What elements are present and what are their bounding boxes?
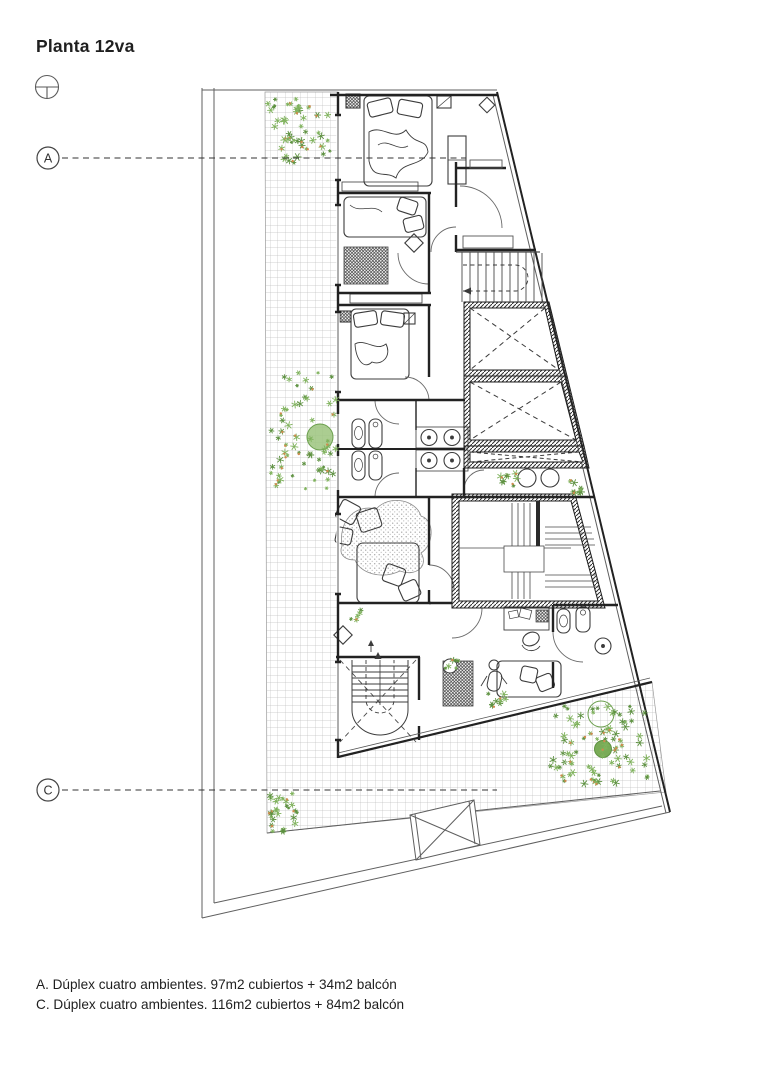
shelf-2 (350, 294, 422, 303)
patio-sinks (518, 469, 559, 487)
bedroom3-bed (351, 309, 409, 379)
master-bed (364, 96, 432, 186)
page-title: Planta 12va (36, 36, 135, 56)
duct-shaft (464, 446, 589, 468)
chair (521, 630, 542, 651)
elevator-shaft-1 (464, 302, 567, 376)
legend-line-c: C. Dúplex cuatro ambientes. 116m2 cubier… (36, 997, 404, 1012)
bedroom2-bed (344, 197, 426, 237)
section-marker-c: C (37, 779, 59, 801)
apartment-c-stair (340, 652, 416, 742)
up-arrow (368, 640, 374, 652)
section-marker-a-label: A (44, 152, 53, 166)
north-indicator-icon (36, 76, 59, 99)
legend-line-a: A. Dúplex cuatro ambientes. 97m2 cubiert… (36, 977, 397, 992)
corner-table (479, 97, 495, 113)
floor-plan-drawing: A C Planta 12va A. Dúplex cuatro ambient… (0, 0, 757, 1080)
upper-stair-flight (456, 252, 542, 302)
main-stairwell (452, 494, 605, 608)
section-marker-c-label: C (43, 784, 52, 798)
rugs (341, 247, 473, 706)
floor-plan-page: A C Planta 12va A. Dúplex cuatro ambient… (0, 0, 757, 1080)
person-figure (481, 660, 507, 692)
elevator-shafts (464, 302, 589, 468)
bathroom-c-fixtures (557, 607, 611, 654)
lower-bed (497, 661, 561, 697)
bedroom-c-rug (341, 500, 431, 575)
desk (504, 607, 549, 630)
wall-vent-icon (437, 96, 451, 108)
bathroom1-fixtures (352, 419, 468, 448)
bathroom2-fixtures (352, 450, 468, 480)
elevator-shaft-2 (464, 376, 584, 446)
section-marker-a: A (37, 147, 59, 169)
legend: A. Dúplex cuatro ambientes. 97m2 cubiert… (36, 977, 404, 1012)
plant-box-icon (340, 311, 351, 322)
bedroom2-rug (344, 247, 388, 284)
